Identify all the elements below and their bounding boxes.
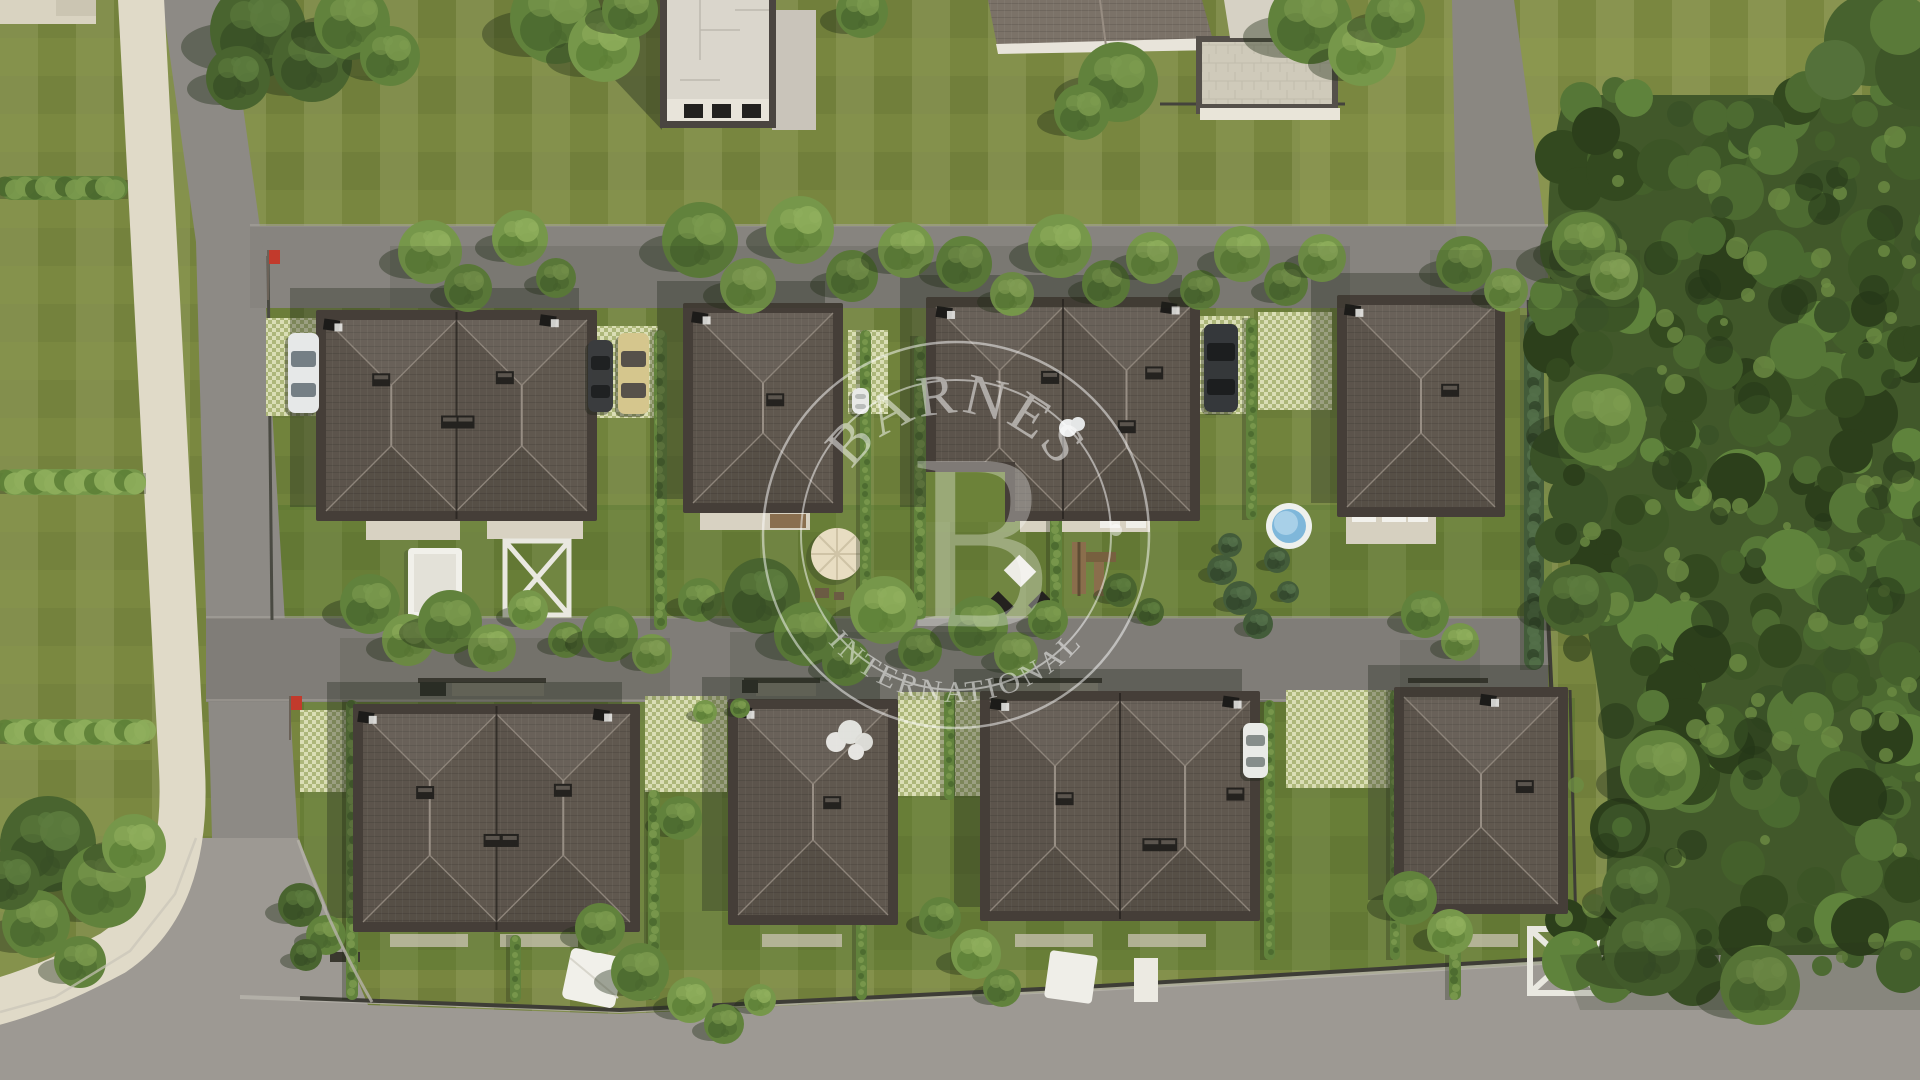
svg-text:B: B — [911, 403, 1052, 681]
